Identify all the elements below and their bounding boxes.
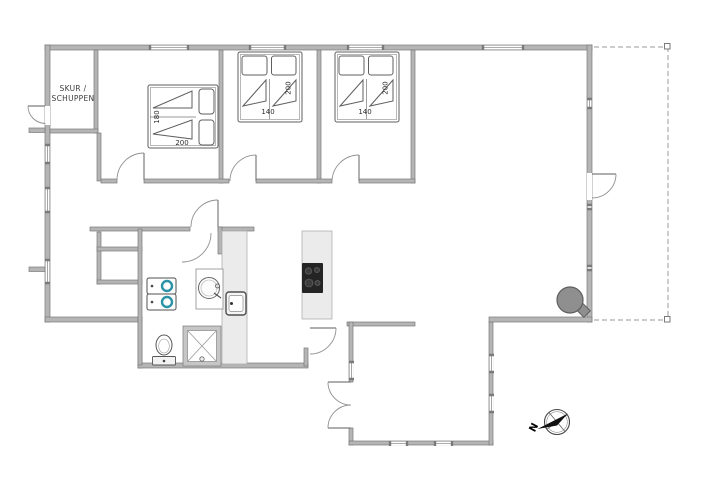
terrace-outline [594, 44, 670, 323]
door-vestibule [310, 328, 336, 354]
window [45, 145, 50, 163]
window [435, 441, 452, 446]
window [348, 45, 383, 50]
room-shed: SKUR / SCHUPPEN [52, 84, 95, 103]
door-bedroom-3 [332, 155, 359, 181]
door-bedroom-2 [230, 155, 256, 181]
window [45, 260, 50, 283]
bathroom-sink-icon [196, 269, 223, 309]
shed-label-line1: SKUR / [60, 84, 87, 93]
bathroom [147, 269, 223, 366]
cooktop-icon [302, 263, 323, 293]
door-shed [28, 106, 46, 124]
window [489, 395, 494, 412]
door-entrance-double [328, 382, 351, 428]
bed-3-length-label: 200 [382, 81, 390, 94]
door-bathroom [182, 233, 211, 262]
door-bedroom-1 [117, 153, 144, 180]
kitchen-sink-icon [226, 292, 246, 315]
floor-plan-page: SKUR / SCHUPPEN 180 200 200 140 200 1 [0, 0, 718, 479]
wood-stove-icon [557, 287, 590, 317]
compass-icon: N [528, 410, 570, 435]
bed-2-width-label: 140 [261, 108, 274, 116]
bed-2-length-label: 200 [285, 81, 293, 94]
toilet-icon [153, 335, 176, 365]
kitchen [222, 231, 332, 364]
floor-plan: SKUR / SCHUPPEN 180 200 200 140 200 1 [0, 0, 718, 479]
window [483, 45, 523, 50]
shower-icon [183, 326, 221, 366]
bed-3-width-label: 140 [358, 108, 371, 116]
window [150, 45, 188, 50]
wall-joint [587, 205, 592, 209]
door-hall [191, 200, 218, 227]
wall-joint [587, 266, 592, 270]
compass-north-label: N [528, 421, 542, 434]
window [45, 188, 50, 212]
window [587, 99, 592, 108]
bed-3: 200 140 [335, 52, 399, 122]
washer-dryer-icon [147, 278, 176, 310]
window [250, 45, 285, 50]
bed-1-width-label: 180 [153, 110, 161, 123]
window [349, 362, 354, 379]
bed-1-length-label: 200 [175, 139, 188, 147]
window [489, 355, 494, 372]
bed-2: 200 140 [238, 52, 302, 122]
bed-1: 180 200 [148, 85, 218, 148]
door-terrace [592, 174, 616, 198]
shed-label-line2: SCHUPPEN [52, 94, 95, 103]
window [390, 441, 407, 446]
